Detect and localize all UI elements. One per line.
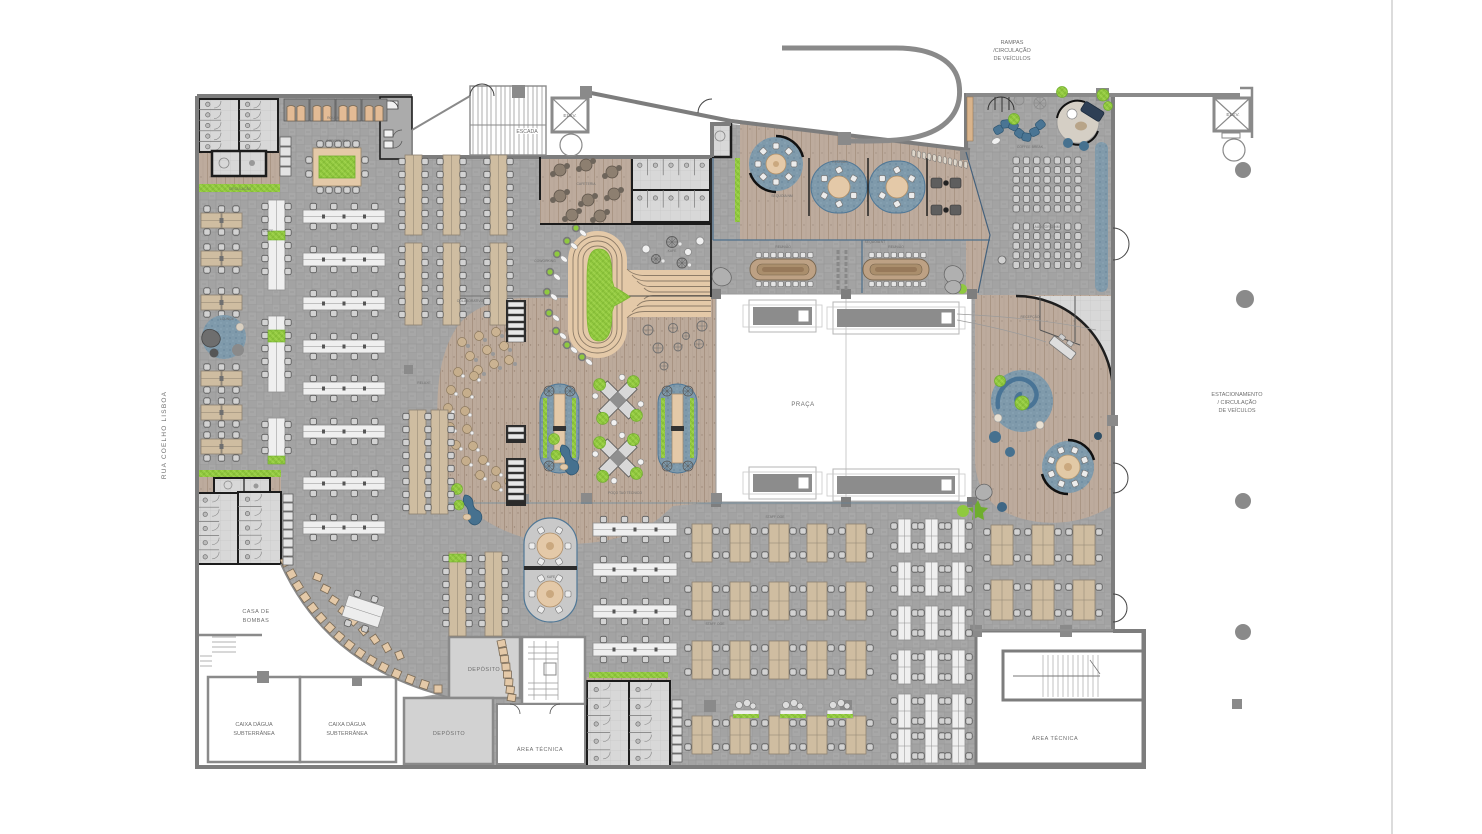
svg-text:KAFE: KAFE bbox=[668, 249, 678, 253]
svg-text:RAMPAS: RAMPAS bbox=[1001, 40, 1024, 46]
svg-text:DEPÓSITO: DEPÓSITO bbox=[468, 666, 501, 673]
svg-text:SUBTERRÂNEA: SUBTERRÂNEA bbox=[233, 730, 275, 737]
svg-text:COWORKING: COWORKING bbox=[326, 139, 348, 143]
svg-text:RELAXE: RELAXE bbox=[417, 381, 431, 385]
svg-text:COLABORATIVO: COLABORATIVO bbox=[457, 299, 484, 303]
svg-text:POÇO TAO TÉCNICO: POÇO TAO TÉCNICO bbox=[608, 490, 642, 495]
svg-text:CAIXA DÁGUA: CAIXA DÁGUA bbox=[328, 721, 366, 728]
svg-text:CAIXA DÁGUA: CAIXA DÁGUA bbox=[235, 721, 273, 728]
svg-text:/ CIRCULAÇÃO: / CIRCULAÇÃO bbox=[1217, 399, 1257, 406]
svg-text:DE VEÍCULOS: DE VEÍCULOS bbox=[1219, 407, 1256, 414]
svg-text:RECEPÇÃO: RECEPÇÃO bbox=[1020, 314, 1039, 319]
svg-text:CASA DE: CASA DE bbox=[242, 609, 269, 615]
svg-text:REUNIÃO: REUNIÃO bbox=[832, 159, 848, 164]
svg-text:DEPÓSITO: DEPÓSITO bbox=[433, 730, 466, 737]
svg-text:SUBTERRÂNEA: SUBTERRÂNEA bbox=[326, 730, 368, 737]
svg-text:COWORKING: COWORKING bbox=[534, 259, 556, 263]
svg-text:REUNIÃO: REUNIÃO bbox=[775, 244, 791, 249]
svg-text:ESTACIONAMENTO: ESTACIONAMENTO bbox=[1211, 392, 1263, 398]
svg-text:CAFETERIA: CAFETERIA bbox=[576, 182, 596, 186]
svg-text:ESCADA: ESCADA bbox=[516, 129, 538, 135]
svg-text:ELEV.: ELEV. bbox=[1226, 112, 1239, 118]
svg-text:RUA COELHO LISBOA: RUA COELHO LISBOA bbox=[161, 391, 168, 479]
svg-text:ROUPA: ROUPA bbox=[327, 116, 340, 120]
svg-text:AUDITÓRIO NM: AUDITÓRIO NM bbox=[1034, 224, 1059, 229]
svg-text:KAFE: KAFE bbox=[547, 575, 555, 579]
svg-text:STAFF: STAFF bbox=[263, 229, 273, 233]
svg-text:CIRCULAÇÃO: CIRCULAÇÃO bbox=[229, 186, 252, 191]
svg-text:DE VEÍCULOS: DE VEÍCULOS bbox=[994, 55, 1031, 62]
svg-text:SEQUOIA NM: SEQUOIA NM bbox=[771, 194, 793, 198]
svg-text:/CIRCULAÇÃO: /CIRCULAÇÃO bbox=[993, 47, 1031, 54]
svg-text:ÁREA TÉCNICA: ÁREA TÉCNICA bbox=[1032, 735, 1078, 742]
svg-text:ÁREA TÉCNICA: ÁREA TÉCNICA bbox=[517, 746, 563, 753]
svg-text:STAFF OGE: STAFF OGE bbox=[766, 515, 786, 519]
svg-text:REUNIÃO: REUNIÃO bbox=[888, 244, 904, 249]
svg-text:ELEV.: ELEV. bbox=[563, 113, 576, 119]
svg-text:BOMBAS: BOMBAS bbox=[243, 618, 270, 624]
svg-text:SEQUOIA NT: SEQUOIA NT bbox=[865, 240, 886, 244]
svg-text:COFFEE BREAK: COFFEE BREAK bbox=[1017, 145, 1044, 149]
svg-text:STAFF OGE: STAFF OGE bbox=[706, 622, 726, 626]
svg-text:LOUNGE: LOUNGE bbox=[220, 317, 235, 321]
svg-text:PRAÇA: PRAÇA bbox=[791, 402, 814, 408]
